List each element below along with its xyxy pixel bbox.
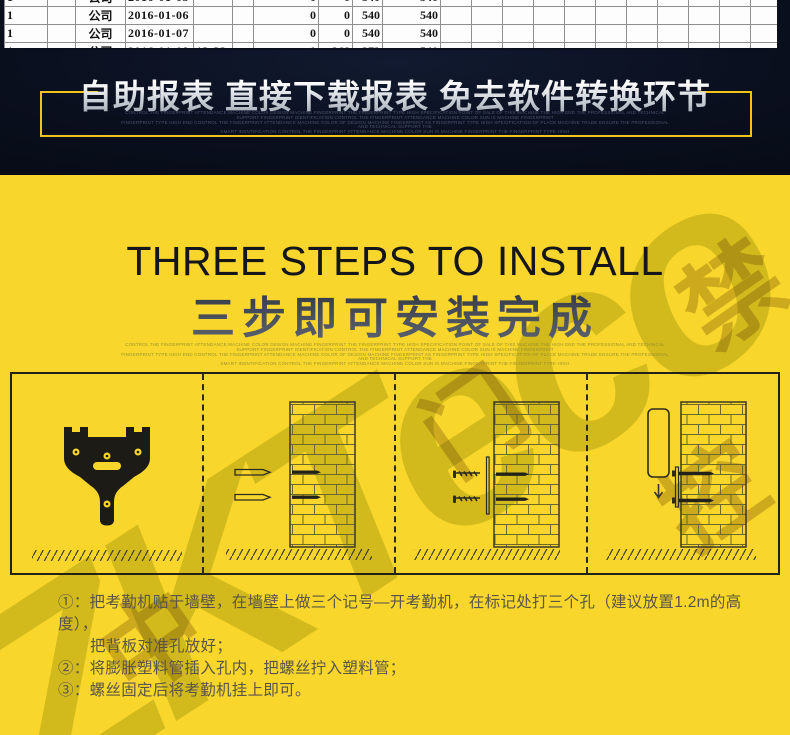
screw-icon: [453, 496, 480, 504]
table-cell: [627, 7, 658, 25]
report-banner: 自助报表 直接下载报表 免去软件转换环节 CONTROL THE FINGERP…: [0, 50, 790, 175]
table-cell: [441, 43, 472, 49]
banner-fine-print: CONTROL THE FINGERPRINT ATTENDANCE MACHI…: [119, 111, 672, 135]
table-cell: 2016-01-08: [126, 43, 194, 49]
table-cell: [503, 7, 534, 25]
install-title-en: THREE STEPS TO INSTALL: [0, 238, 790, 285]
table-cell: 268: [319, 43, 353, 49]
screw-in-wall: [496, 498, 529, 501]
screw-in-wall: [679, 472, 714, 475]
install-title-cn: 三步即可安装完成: [0, 282, 790, 346]
table-cell: [472, 7, 503, 25]
anchor-plug-icon: [235, 495, 270, 501]
table-cell: [658, 25, 689, 43]
table-cell: [720, 25, 751, 43]
screw-head: [672, 498, 676, 504]
table-cell: 0: [319, 7, 353, 25]
table-cell: [48, 7, 76, 25]
backplate-edge: [676, 467, 679, 507]
table-cell: 2016-01-06: [126, 7, 194, 25]
screw-in-wall: [496, 473, 529, 476]
backplate-edge: [487, 457, 490, 514]
screw-head: [672, 471, 676, 477]
table-cell: [689, 25, 720, 43]
install-steps-illustration: [10, 372, 780, 575]
table-cell: [751, 43, 778, 49]
brick-wall: [290, 402, 355, 547]
table-cell: 540: [353, 25, 383, 43]
table-cell: 13:32: [194, 43, 233, 49]
table-cell: [658, 7, 689, 25]
table-cell: [48, 43, 76, 49]
table-cell: 0: [254, 43, 319, 49]
table-cell: [596, 7, 627, 25]
table-cell: [534, 25, 565, 43]
table-cell: [689, 43, 720, 49]
table-cell: [472, 25, 503, 43]
fine-print-line: SMART IDENTIFICATION CONTROL THE FINGERP…: [119, 362, 672, 367]
table-cell: 公司: [76, 25, 126, 43]
fine-print-line: SMART IDENTIFICATION CONTROL THE FINGERP…: [119, 130, 672, 135]
step-panel-4: [588, 374, 778, 573]
down-arrow-icon: [655, 484, 663, 498]
install-instructions: ①：把考勤机贴于墙壁，在墙壁上做三个记号—开考勤机，在标记处打三个孔（建议放置1…: [58, 592, 758, 702]
device-icon: [648, 409, 669, 477]
bracket-slot: [93, 462, 121, 470]
table-cell: 0: [319, 25, 353, 43]
table-cell: [441, 7, 472, 25]
table-cell: [534, 7, 565, 25]
table-row: 1公司2016-01-0600540540: [5, 7, 778, 25]
report-spreadsheet: 1公司2016-01-05005405401公司2016-01-06005405…: [4, 0, 777, 48]
screw-in-wall: [679, 499, 714, 502]
table-cell: 1: [5, 43, 48, 49]
table-cell: 540: [383, 25, 441, 43]
table-cell: 2016-01-07: [126, 25, 194, 43]
table-cell: [441, 25, 472, 43]
wall-anchors-illustration: [204, 374, 394, 573]
ground-hatch: [414, 549, 560, 560]
ground-hatch: [32, 550, 182, 561]
table-cell: [194, 25, 233, 43]
table-cell: 272: [353, 43, 383, 49]
install-guide-section: ZKTeco 禁 门 控 中 THREE STEPS TO INSTALL 三步…: [0, 175, 790, 735]
instruction-step-3: ③：螺丝固定后将考勤机挂上即可。: [58, 680, 758, 702]
device-hang-illustration: [588, 374, 778, 573]
step-panel-1: [12, 374, 204, 573]
bracket-notch: [134, 426, 142, 432]
table-cell: 540: [383, 7, 441, 25]
table-cell: [565, 7, 596, 25]
table-cell: [720, 7, 751, 25]
step-panel-2: [204, 374, 396, 573]
table-cell: [565, 43, 596, 49]
table-cell: 540: [383, 43, 441, 49]
table-cell: [596, 25, 627, 43]
screw-icon: [453, 471, 480, 479]
mounting-bracket-icon: [12, 374, 202, 573]
table-cell: [596, 43, 627, 49]
table-row: 1公司2016-01-0700540540: [5, 25, 778, 43]
table-cell: 公司: [76, 43, 126, 49]
report-spreadsheet-section: 1公司2016-01-05005405401公司2016-01-06005405…: [0, 0, 790, 50]
wall-screws-illustration: [396, 374, 586, 573]
table-cell: [233, 43, 254, 49]
product-detail-image: 1公司2016-01-05005405401公司2016-01-06005405…: [0, 0, 790, 735]
table-cell: 0: [254, 25, 319, 43]
table-cell: [565, 25, 596, 43]
step-panel-3: [396, 374, 588, 573]
table-cell: [194, 7, 233, 25]
bracket-body: [64, 427, 150, 526]
ground-hatch: [226, 549, 372, 560]
report-table-body: 1公司2016-01-05005405401公司2016-01-06005405…: [5, 0, 778, 48]
table-cell: [503, 25, 534, 43]
table-cell: 公司: [76, 7, 126, 25]
hero-fine-print: CONTROL THE FINGERPRINT ATTENDANCE MACHI…: [119, 343, 672, 367]
anchor-plug-icon: [235, 470, 270, 476]
instruction-step-2: ②：将膨胀塑料管插入孔内，把螺丝拧入塑料管；: [58, 658, 758, 680]
table-cell: 1: [5, 25, 48, 43]
table-row: 1公司2016-01-0813:320268272540: [5, 43, 778, 49]
table-cell: 1: [5, 7, 48, 25]
table-cell: [48, 25, 76, 43]
table-cell: [233, 25, 254, 43]
table-cell: 0: [254, 7, 319, 25]
table-cell: [534, 43, 565, 49]
table-cell: [627, 43, 658, 49]
report-table: 1公司2016-01-05005405401公司2016-01-06005405…: [4, 0, 777, 48]
table-cell: [751, 7, 778, 25]
table-cell: [472, 43, 503, 49]
instruction-step-1: ①：把考勤机贴于墙壁，在墙壁上做三个记号—开考勤机，在标记处打三个孔（建议放置1…: [58, 592, 758, 636]
drilled-hole: [292, 496, 321, 499]
table-cell: [689, 7, 720, 25]
drilled-hole: [292, 471, 321, 474]
table-cell: [233, 7, 254, 25]
table-cell: [503, 43, 534, 49]
table-cell: [751, 25, 778, 43]
table-cell: [627, 25, 658, 43]
table-cell: 540: [353, 7, 383, 25]
table-cell: [720, 43, 751, 49]
ground-hatch: [606, 549, 756, 560]
table-cell: [658, 43, 689, 49]
instruction-step-1-cont: 把背板对准孔放好；: [58, 636, 758, 658]
bracket-notch: [72, 426, 80, 432]
